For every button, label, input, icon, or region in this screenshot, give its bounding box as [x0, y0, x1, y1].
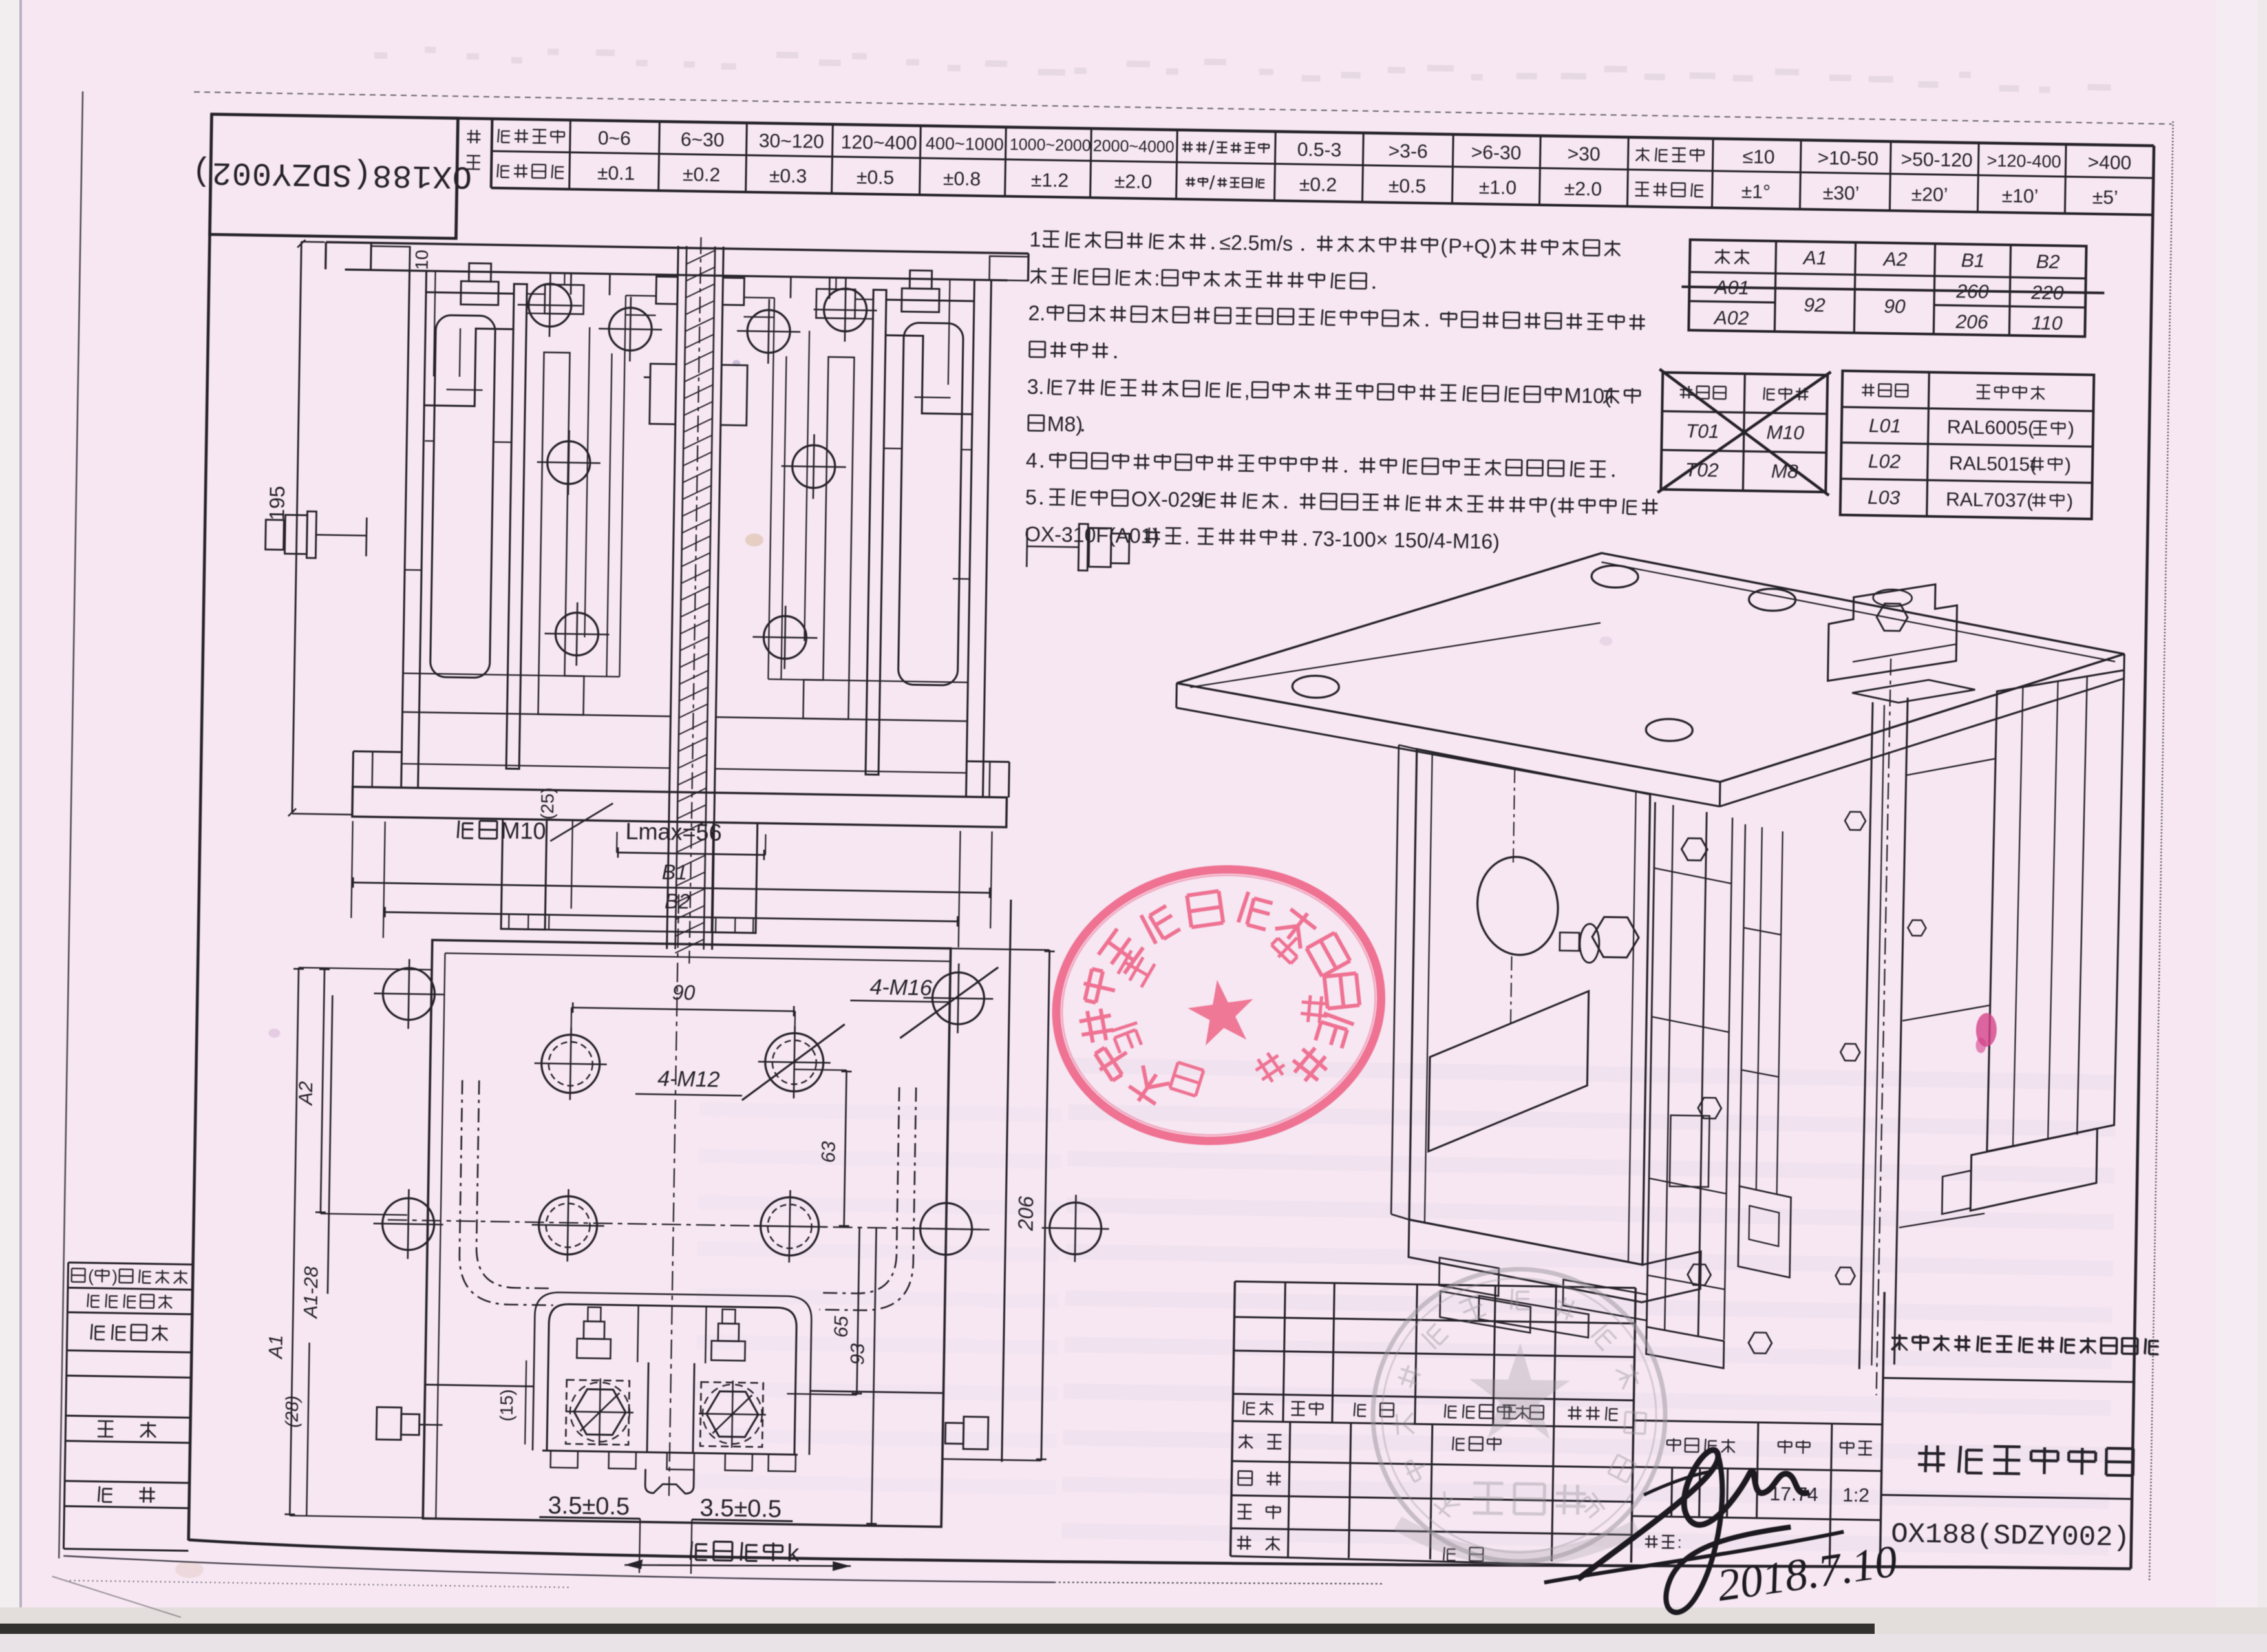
svg-text:L02: L02 — [1868, 450, 1901, 472]
svg-text:>6-30: >6-30 — [1471, 142, 1521, 164]
svg-text:±2.0: ±2.0 — [1564, 178, 1602, 200]
svg-text:L01: L01 — [1869, 415, 1902, 437]
svg-text:k: k — [787, 1540, 800, 1567]
svg-text:>3-6: >3-6 — [1389, 140, 1428, 162]
svg-text:>10-50: >10-50 — [1817, 147, 1879, 170]
svg-text:65: 65 — [831, 1316, 853, 1338]
svg-text:±0.5: ±0.5 — [1389, 175, 1427, 197]
svg-text:RAL7037(: RAL7037( — [1946, 489, 2034, 511]
svg-text:M10: M10 — [500, 817, 546, 844]
svg-text:73-100× 150/4-M16): 73-100× 150/4-M16) — [1312, 527, 1500, 553]
svg-text:Lmax=56: Lmax=56 — [625, 818, 722, 845]
svg-text:M10: M10 — [1766, 422, 1804, 444]
svg-text:6~30: 6~30 — [681, 129, 725, 151]
svg-text:/: / — [1209, 173, 1216, 194]
svg-text:4-M16: 4-M16 — [869, 975, 932, 1001]
svg-text:(: ( — [88, 1266, 94, 1286]
svg-text::: : — [1154, 266, 1160, 290]
svg-text:L03: L03 — [1868, 487, 1900, 509]
svg-text:): ) — [2067, 491, 2074, 512]
svg-text:M8): M8) — [1047, 412, 1083, 436]
svg-text:(: ( — [1440, 235, 1448, 258]
svg-text:±1°: ±1° — [1741, 181, 1771, 203]
svg-text:±20’: ±20’ — [1911, 184, 1948, 206]
svg-text:206: 206 — [1014, 1196, 1038, 1231]
svg-text:OX188(SDZY002): OX188(SDZY002) — [191, 153, 473, 194]
svg-text:0~6: 0~6 — [598, 127, 631, 149]
svg-text:OX-029: OX-029 — [1131, 487, 1203, 512]
svg-text:±1.0: ±1.0 — [1479, 177, 1517, 199]
svg-text:(: ( — [1549, 494, 1557, 517]
svg-text:B1: B1 — [1961, 250, 1985, 272]
svg-text:,: , — [1244, 379, 1250, 402]
svg-text:±10’: ±10’ — [2002, 185, 2039, 207]
svg-text:±0.2: ±0.2 — [1299, 174, 1337, 196]
svg-text:±0.3: ±0.3 — [769, 165, 807, 187]
svg-text:/: / — [1209, 138, 1215, 159]
svg-text:4: 4 — [1026, 449, 1038, 472]
svg-text::: : — [1677, 1534, 1682, 1552]
svg-text:>400: >400 — [2087, 152, 2131, 174]
svg-text:P+Q): P+Q) — [1448, 235, 1497, 259]
svg-text:3.5±0.5: 3.5±0.5 — [699, 1494, 782, 1523]
svg-text:120~400: 120~400 — [841, 132, 917, 154]
svg-text:7: 7 — [1065, 376, 1076, 399]
svg-text:±5’: ±5’ — [2092, 187, 2118, 209]
svg-text:206: 206 — [1955, 312, 1988, 334]
svg-text:±30’: ±30’ — [1823, 182, 1860, 204]
svg-text:M10(: M10( — [1564, 384, 1612, 408]
svg-text:4-M12: 4-M12 — [657, 1066, 720, 1092]
svg-text:T01: T01 — [1686, 421, 1719, 443]
svg-text:(28): (28) — [281, 1395, 302, 1428]
svg-text:1000~2000: 1000~2000 — [1010, 136, 1091, 155]
svg-text:): ) — [2065, 454, 2072, 476]
svg-text:): ) — [2068, 418, 2075, 439]
svg-text:63: 63 — [818, 1141, 840, 1163]
svg-text:92: 92 — [1804, 295, 1825, 317]
svg-text:B2: B2 — [665, 889, 690, 913]
svg-text:(25): (25) — [537, 787, 558, 820]
svg-text:1:2: 1:2 — [1842, 1485, 1869, 1507]
svg-text:>30: >30 — [1567, 143, 1600, 165]
svg-text:0.5-3: 0.5-3 — [1297, 139, 1342, 161]
svg-text:30~120: 30~120 — [759, 130, 824, 153]
svg-text:3.5±0.5: 3.5±0.5 — [548, 1492, 630, 1520]
svg-text:±0.8: ±0.8 — [943, 168, 981, 190]
svg-text:≤10: ≤10 — [1742, 146, 1774, 168]
svg-text:A2: A2 — [1882, 249, 1908, 271]
svg-text:93: 93 — [847, 1343, 869, 1365]
svg-text:2000~4000: 2000~4000 — [1093, 137, 1175, 156]
svg-text:±0.2: ±0.2 — [683, 164, 721, 186]
svg-text:A2: A2 — [295, 1081, 317, 1107]
svg-text:±2.0: ±2.0 — [1114, 171, 1153, 193]
svg-text:RAL6005(: RAL6005( — [1947, 416, 2035, 439]
svg-text:±0.5: ±0.5 — [857, 167, 895, 189]
svg-text:90: 90 — [672, 980, 695, 1004]
svg-text:2.: 2. — [1028, 301, 1045, 324]
svg-text:A1-28: A1-28 — [300, 1266, 322, 1320]
svg-text:B2: B2 — [2036, 251, 2061, 273]
svg-text:RAL5015(: RAL5015( — [1949, 452, 2037, 475]
svg-text:110: 110 — [2031, 312, 2063, 334]
svg-text:>50-120: >50-120 — [1900, 149, 1972, 171]
svg-text:400~1000: 400~1000 — [926, 134, 1004, 154]
svg-text:OX188(SDZY002): OX188(SDZY002) — [1891, 1518, 2130, 1554]
svg-text:OX-310F(A01): OX-310F(A01) — [1025, 522, 1160, 547]
svg-text:10: 10 — [412, 249, 432, 270]
svg-text:A1: A1 — [1802, 248, 1827, 270]
svg-text:±1.2: ±1.2 — [1031, 169, 1069, 191]
svg-text:5: 5 — [1025, 485, 1037, 509]
svg-text:>120-400: >120-400 — [1986, 151, 2061, 171]
svg-text:±0.1: ±0.1 — [597, 162, 635, 184]
svg-text:.: . — [1184, 525, 1190, 548]
svg-text:3.: 3. — [1027, 375, 1044, 398]
svg-text:B1: B1 — [662, 860, 688, 884]
svg-text:A02: A02 — [1713, 307, 1749, 329]
svg-text:): ) — [112, 1266, 118, 1286]
svg-text:(15): (15) — [496, 1389, 517, 1421]
svg-text:≤2.5m/s: ≤2.5m/s — [1219, 231, 1293, 255]
svg-text:A1: A1 — [265, 1335, 287, 1360]
svg-text:90: 90 — [1884, 296, 1906, 318]
